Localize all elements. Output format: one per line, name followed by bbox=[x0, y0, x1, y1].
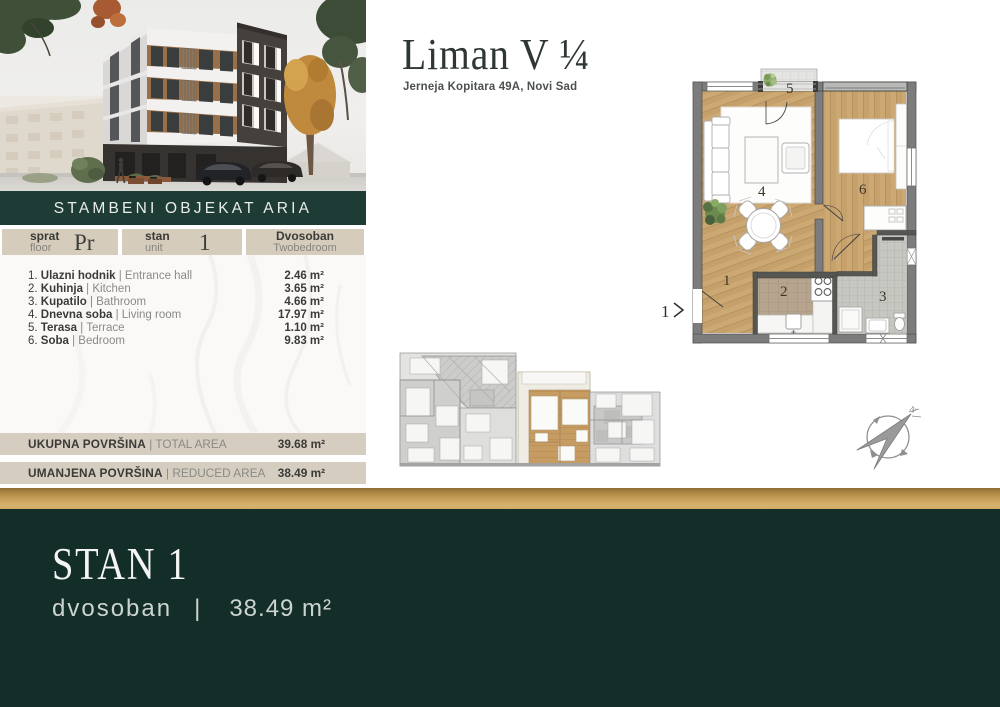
svg-text:1: 1 bbox=[661, 302, 670, 321]
svg-text:5: 5 bbox=[786, 81, 794, 97]
svg-text:1: 1 bbox=[723, 273, 731, 289]
svg-text:2: 2 bbox=[780, 284, 788, 300]
svg-text:6: 6 bbox=[859, 182, 867, 198]
svg-text:3: 3 bbox=[879, 289, 887, 305]
svg-text:4: 4 bbox=[758, 184, 766, 200]
